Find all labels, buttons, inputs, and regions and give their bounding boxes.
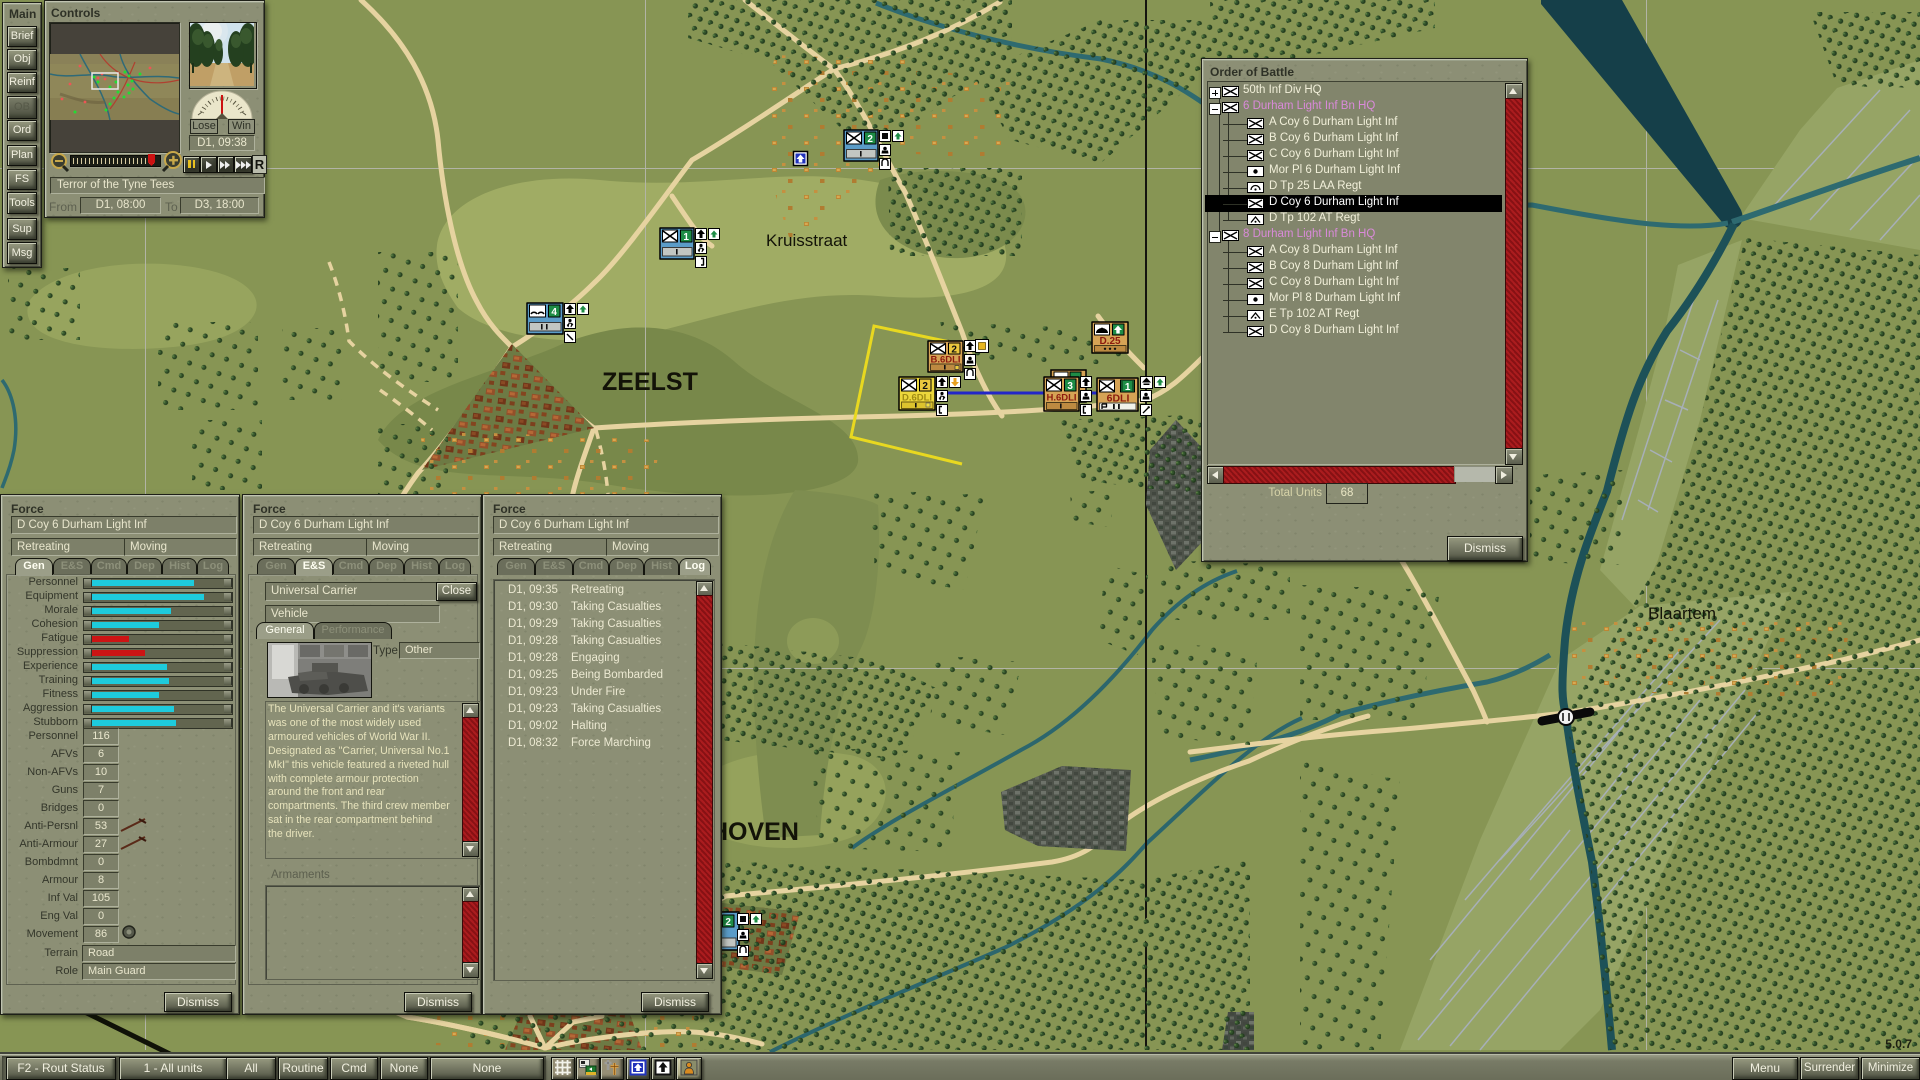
svg-text:H.6DLI: H.6DLI — [1046, 393, 1076, 404]
svg-text:5.0.7: 5.0.7 — [1885, 1037, 1912, 1051]
svg-text:Kruisstraat: Kruisstraat — [766, 231, 848, 250]
svg-text:2: 2 — [922, 381, 928, 392]
svg-text:2: 2 — [867, 134, 873, 145]
svg-text:4: 4 — [551, 307, 557, 318]
svg-text:ZEELST: ZEELST — [602, 368, 698, 396]
svg-text:2: 2 — [725, 917, 731, 928]
svg-text:HOVEN: HOVEN — [710, 818, 799, 846]
svg-text:3: 3 — [1067, 381, 1073, 392]
svg-text:Blaartem: Blaartem — [1648, 604, 1716, 623]
svg-text:1: 1 — [683, 232, 689, 243]
svg-text:1: 1 — [1125, 382, 1131, 393]
